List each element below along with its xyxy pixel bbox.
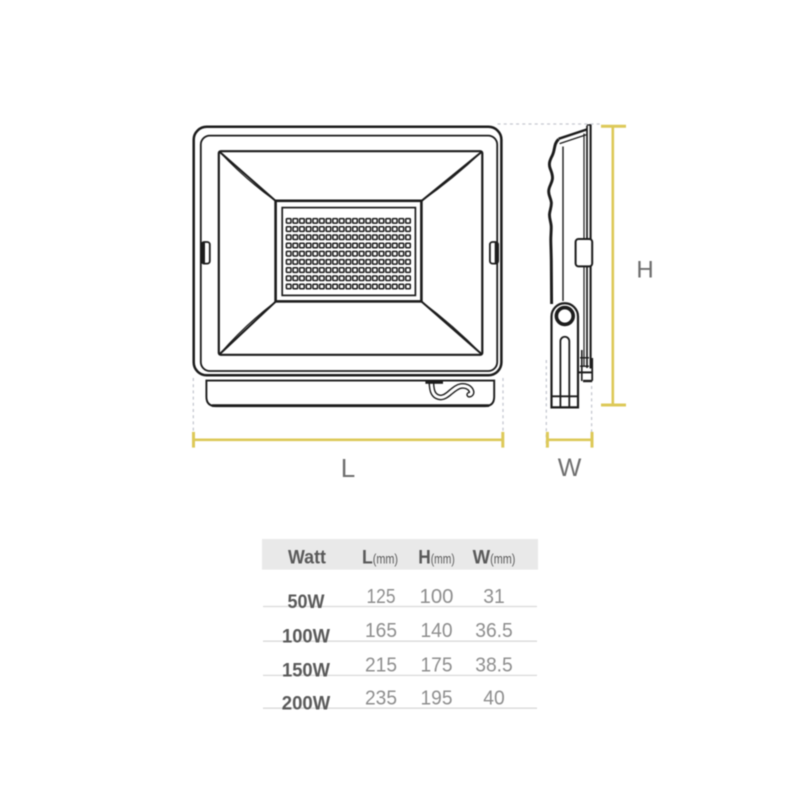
svg-text:235: 235	[365, 686, 397, 709]
svg-text:38.5: 38.5	[475, 654, 513, 677]
svg-text:36.5: 36.5	[475, 619, 513, 642]
svg-text:50W: 50W	[288, 591, 326, 613]
svg-text:200W: 200W	[282, 693, 331, 715]
svg-text:150W: 150W	[282, 660, 331, 682]
svg-text:215: 215	[365, 654, 397, 677]
svg-text:W: W	[558, 454, 582, 482]
svg-text:40: 40	[483, 686, 505, 709]
svg-text:H: H	[636, 257, 653, 284]
svg-text:Watt: Watt	[288, 547, 326, 569]
svg-text:165: 165	[365, 619, 397, 642]
svg-text:125: 125	[367, 585, 396, 608]
svg-text:31: 31	[483, 585, 505, 608]
svg-text:L: L	[341, 453, 355, 483]
svg-text:100: 100	[420, 585, 454, 608]
svg-text:195: 195	[421, 686, 453, 709]
svg-text:100W: 100W	[282, 626, 331, 648]
svg-text:175: 175	[421, 654, 453, 677]
svg-text:140: 140	[421, 619, 453, 642]
